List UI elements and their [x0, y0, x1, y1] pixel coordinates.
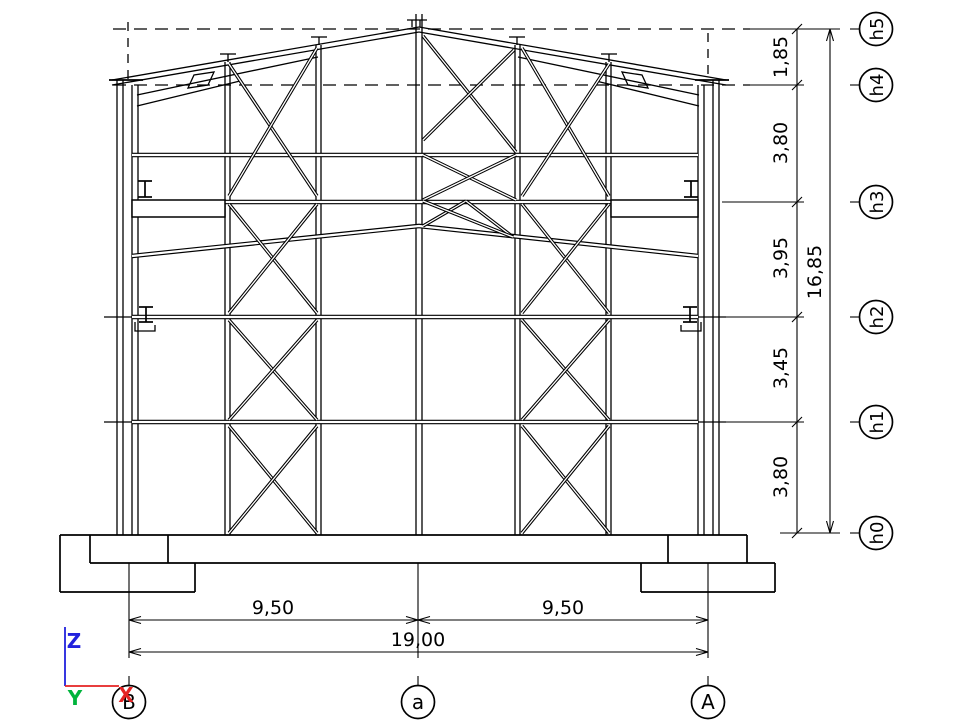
level-label-h0: h0 — [867, 522, 888, 545]
level-label-h4: h4 — [867, 74, 888, 97]
dim-seg-1: 1,85 — [770, 36, 792, 78]
datum-lines — [113, 22, 750, 85]
bracing — [229, 36, 609, 533]
rail-section-left-h3 — [138, 181, 152, 197]
dim-seg-3: 3,95 — [770, 237, 792, 279]
floor-beams — [104, 155, 726, 422]
level-label-h3: h3 — [867, 191, 888, 214]
grid-label-a: a — [412, 690, 424, 714]
columns-and-posts — [117, 14, 719, 535]
level-label-h1: h1 — [867, 411, 888, 434]
dim-total-height: 16,85 — [804, 245, 826, 299]
dim-seg-5: 3,80 — [770, 456, 792, 498]
horizontal-dimension-chain: 9,50 9,50 19,00 — [129, 563, 708, 658]
cad-viewport[interactable]: 1,85 3,80 3,95 3,45 3,80 16,85 h5 h4 h3 … — [0, 0, 960, 720]
grid-bubbles: B a A — [113, 676, 725, 719]
level-bubbles: h5 h4 h3 h2 h1 h0 — [850, 13, 893, 550]
span-dim-total: 19,00 — [391, 629, 445, 651]
dim-seg-2: 3,80 — [770, 122, 792, 164]
coordinate-triad: Z Y X — [65, 627, 134, 710]
level-label-h2: h2 — [867, 306, 888, 329]
x-axis-label: X — [118, 683, 134, 707]
y-axis-label: Y — [67, 686, 83, 710]
span-dim-left: 9,50 — [252, 597, 294, 619]
grid-label-A: A — [701, 690, 715, 714]
span-dim-right: 9,50 — [542, 597, 584, 619]
section-drawing: 1,85 3,80 3,95 3,45 3,80 16,85 h5 h4 h3 … — [0, 0, 960, 720]
dim-seg-4: 3,45 — [770, 347, 792, 389]
rafters — [109, 20, 729, 106]
vertical-dimension-chain: 1,85 3,80 3,95 3,45 3,80 16,85 — [717, 24, 840, 538]
z-axis-label: Z — [67, 629, 82, 653]
rail-section-right-h3 — [684, 181, 698, 197]
level-label-h5: h5 — [867, 18, 888, 41]
